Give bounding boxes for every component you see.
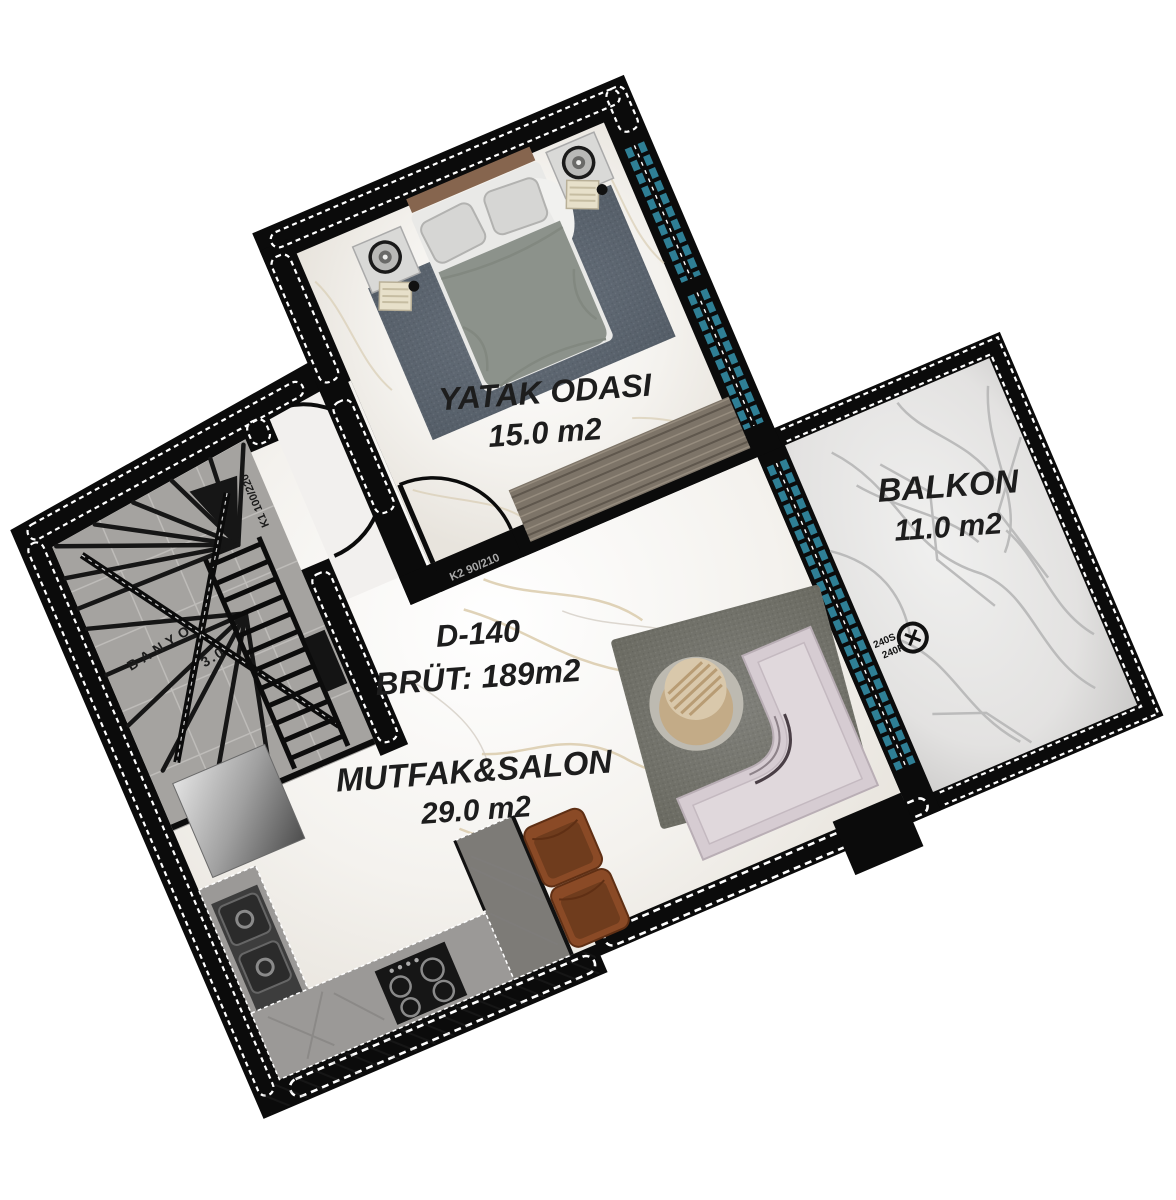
svg-text:D-140: D-140: [435, 613, 522, 654]
